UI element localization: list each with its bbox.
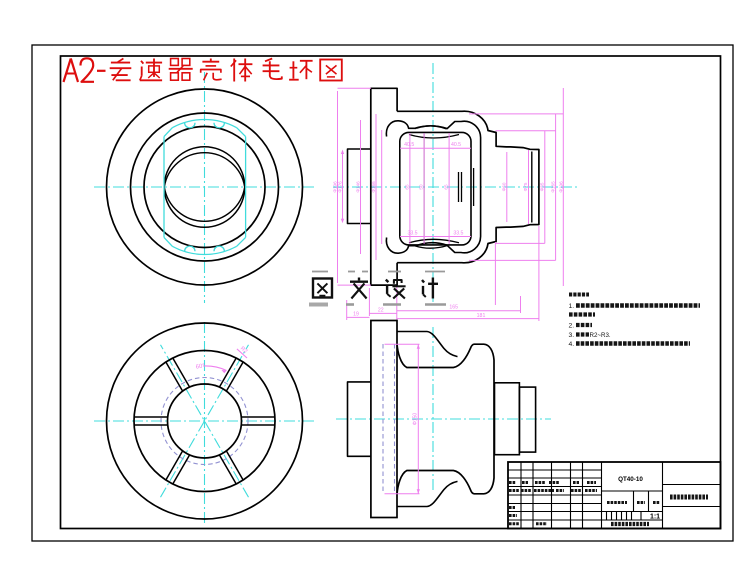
svg-text:65: 65: [444, 184, 449, 190]
svg-text:50: 50: [419, 184, 424, 190]
svg-text:Φ176: Φ176: [338, 181, 343, 193]
svg-text:1.: 1.: [569, 303, 575, 310]
svg-text:40.5: 40.5: [451, 142, 461, 148]
svg-text:Φ85: Φ85: [540, 182, 545, 191]
svg-text:Φ196: Φ196: [558, 181, 563, 193]
svg-text:165: 165: [449, 305, 458, 311]
svg-text:33.5: 33.5: [407, 230, 417, 236]
svg-text:181: 181: [477, 313, 486, 319]
svg-text:4.: 4.: [569, 341, 575, 348]
svg-text:19: 19: [353, 311, 359, 317]
svg-text:1:1: 1:1: [650, 513, 660, 520]
svg-text:Φ146: Φ146: [356, 181, 361, 193]
svg-text:Φ166: Φ166: [371, 181, 376, 193]
svg-text:R2~R3.: R2~R3.: [590, 332, 611, 339]
svg-text:Φ165: Φ165: [551, 181, 556, 193]
svg-text:2.: 2.: [569, 323, 575, 330]
svg-text:40.5: 40.5: [404, 142, 414, 148]
svg-text:22: 22: [378, 307, 384, 313]
svg-text:33.5: 33.5: [453, 230, 463, 236]
svg-text:65: 65: [404, 184, 409, 190]
svg-text:Φ150: Φ150: [413, 413, 419, 426]
svg-text:Φ60: Φ60: [502, 182, 507, 191]
svg-text:QT40-10: QT40-10: [618, 476, 643, 483]
svg-text:Φ75: Φ75: [523, 182, 528, 191]
svg-text:3.: 3.: [569, 332, 575, 339]
